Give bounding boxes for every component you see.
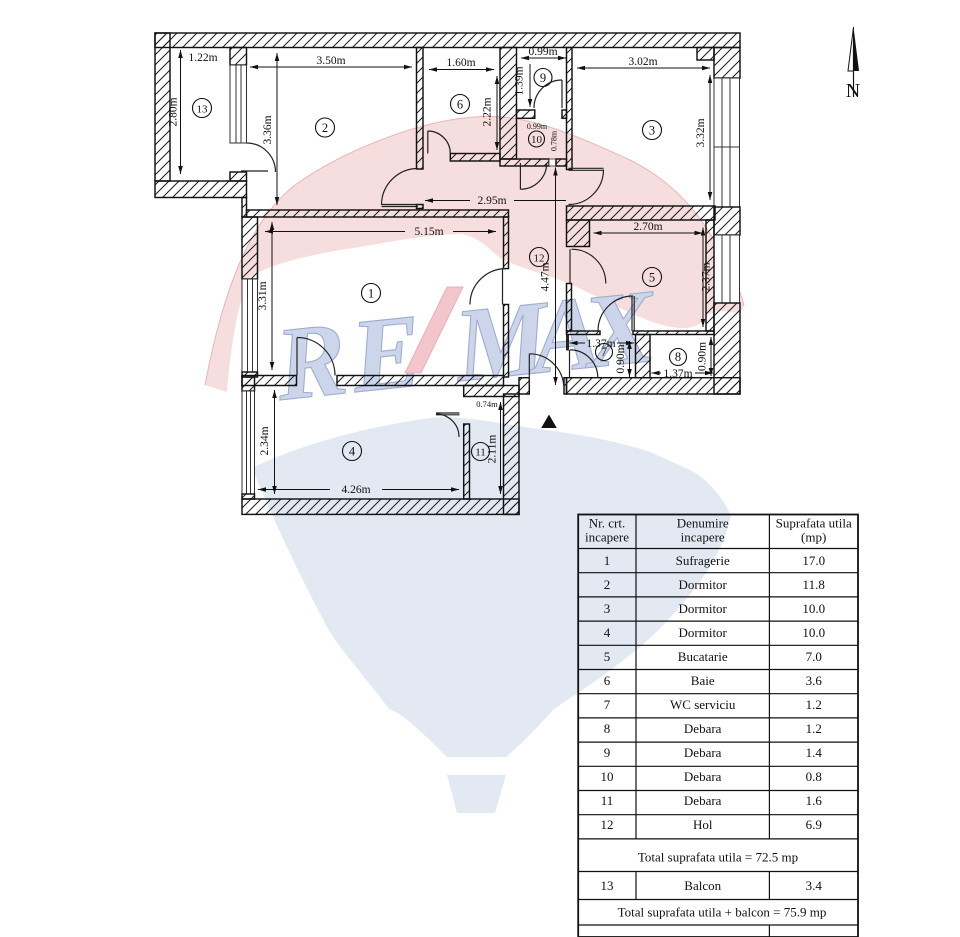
svg-text:Dormitor: Dormitor bbox=[679, 625, 728, 640]
svg-text:1.2: 1.2 bbox=[806, 721, 822, 736]
svg-text:11: 11 bbox=[601, 793, 614, 808]
svg-text:3.4: 3.4 bbox=[806, 878, 823, 893]
svg-text:0.74m: 0.74m bbox=[476, 399, 498, 409]
svg-text:1.39m: 1.39m bbox=[514, 66, 526, 95]
svg-text:Dormitor: Dormitor bbox=[679, 577, 728, 592]
svg-text:1.2: 1.2 bbox=[806, 697, 822, 712]
svg-text:Hol: Hol bbox=[693, 817, 713, 832]
svg-text:0.90m: 0.90m bbox=[615, 344, 627, 373]
svg-text:7.0: 7.0 bbox=[806, 649, 822, 664]
svg-text:6: 6 bbox=[457, 98, 463, 112]
svg-text:3.31m: 3.31m bbox=[257, 281, 269, 310]
svg-text:3.02m: 3.02m bbox=[628, 56, 657, 68]
svg-text:2.34m: 2.34m bbox=[259, 426, 271, 455]
svg-text:0.99m: 0.99m bbox=[528, 46, 557, 58]
svg-text:1.4: 1.4 bbox=[806, 745, 823, 760]
svg-text:11.8: 11.8 bbox=[803, 577, 825, 592]
svg-text:13: 13 bbox=[601, 878, 614, 893]
svg-text:0.78m: 0.78m bbox=[550, 130, 559, 151]
svg-text:12: 12 bbox=[601, 817, 614, 832]
svg-text:0.90m: 0.90m bbox=[697, 342, 709, 371]
svg-text:2.22m: 2.22m bbox=[482, 97, 494, 126]
svg-text:2.11m: 2.11m bbox=[487, 435, 499, 464]
svg-text:Suprafata utila: Suprafata utila bbox=[776, 516, 852, 531]
svg-text:1.37m: 1.37m bbox=[663, 368, 692, 380]
svg-text:2.37m: 2.37m bbox=[701, 262, 713, 291]
svg-text:6.9: 6.9 bbox=[806, 817, 822, 832]
svg-text:7: 7 bbox=[601, 345, 607, 359]
svg-text:5.15m: 5.15m bbox=[414, 226, 443, 238]
svg-text:4.26m: 4.26m bbox=[341, 484, 370, 496]
svg-text:3.6: 3.6 bbox=[806, 673, 823, 688]
svg-text:Denumire: Denumire bbox=[677, 516, 729, 531]
svg-text:1.22m: 1.22m bbox=[188, 52, 217, 64]
svg-text:3.32m: 3.32m bbox=[695, 118, 707, 147]
svg-text:2.80m: 2.80m bbox=[168, 97, 180, 126]
svg-text:2.95m: 2.95m bbox=[477, 195, 506, 207]
svg-text:N: N bbox=[846, 80, 860, 102]
svg-text:2: 2 bbox=[322, 121, 328, 135]
svg-text:1: 1 bbox=[604, 553, 611, 568]
svg-text:5: 5 bbox=[604, 649, 611, 664]
svg-text:9: 9 bbox=[604, 745, 611, 760]
svg-text:0.99m: 0.99m bbox=[527, 122, 548, 131]
svg-text:8: 8 bbox=[675, 350, 681, 364]
svg-text:3.36m: 3.36m bbox=[262, 115, 274, 144]
svg-text:Total suprafata utila = 72.5 m: Total suprafata utila = 72.5 mp bbox=[638, 850, 798, 865]
svg-text:Nr. crt.: Nr. crt. bbox=[589, 516, 625, 531]
svg-text:Debara: Debara bbox=[684, 745, 722, 760]
svg-text:11: 11 bbox=[475, 447, 486, 459]
svg-text:Baie: Baie bbox=[691, 673, 715, 688]
svg-text:Dormitor: Dormitor bbox=[679, 601, 728, 616]
svg-text:3: 3 bbox=[649, 124, 655, 138]
svg-text:0.8: 0.8 bbox=[806, 769, 822, 784]
svg-text:Bucatarie: Bucatarie bbox=[678, 649, 728, 664]
svg-text:12: 12 bbox=[534, 253, 545, 265]
svg-text:Sufragerie: Sufragerie bbox=[676, 553, 730, 568]
svg-text:Balcon: Balcon bbox=[684, 878, 721, 893]
svg-text:1.60m: 1.60m bbox=[446, 57, 475, 69]
svg-text:6: 6 bbox=[604, 673, 611, 688]
svg-text:10.0: 10.0 bbox=[802, 601, 825, 616]
svg-text:(mp): (mp) bbox=[801, 530, 826, 545]
svg-text:4: 4 bbox=[349, 445, 356, 459]
svg-text:9: 9 bbox=[540, 71, 546, 85]
svg-text:WC serviciu: WC serviciu bbox=[670, 697, 736, 712]
svg-text:2: 2 bbox=[604, 577, 611, 592]
svg-text:1: 1 bbox=[368, 287, 374, 301]
svg-text:2.70m: 2.70m bbox=[633, 221, 662, 233]
svg-text:incapere: incapere bbox=[585, 530, 629, 545]
svg-text:Debara: Debara bbox=[684, 793, 722, 808]
svg-text:3.50m: 3.50m bbox=[316, 55, 345, 67]
svg-text:17.0: 17.0 bbox=[802, 553, 825, 568]
svg-text:RE: RE bbox=[269, 291, 427, 423]
svg-text:10: 10 bbox=[601, 769, 614, 784]
svg-text:7: 7 bbox=[604, 697, 611, 712]
svg-text:1.6: 1.6 bbox=[806, 793, 823, 808]
svg-text:5: 5 bbox=[649, 271, 655, 285]
svg-text:10.0: 10.0 bbox=[802, 625, 825, 640]
svg-text:Debara: Debara bbox=[684, 721, 722, 736]
svg-text:Debara: Debara bbox=[684, 769, 722, 784]
svg-text:Total suprafata utila + balcon: Total suprafata utila + balcon = 75.9 mp bbox=[618, 905, 827, 920]
svg-text:10: 10 bbox=[531, 134, 543, 146]
svg-text:3: 3 bbox=[604, 601, 611, 616]
svg-text:13: 13 bbox=[197, 104, 209, 116]
svg-text:4: 4 bbox=[604, 625, 611, 640]
svg-text:8: 8 bbox=[604, 721, 611, 736]
svg-text:incapere: incapere bbox=[681, 530, 725, 545]
